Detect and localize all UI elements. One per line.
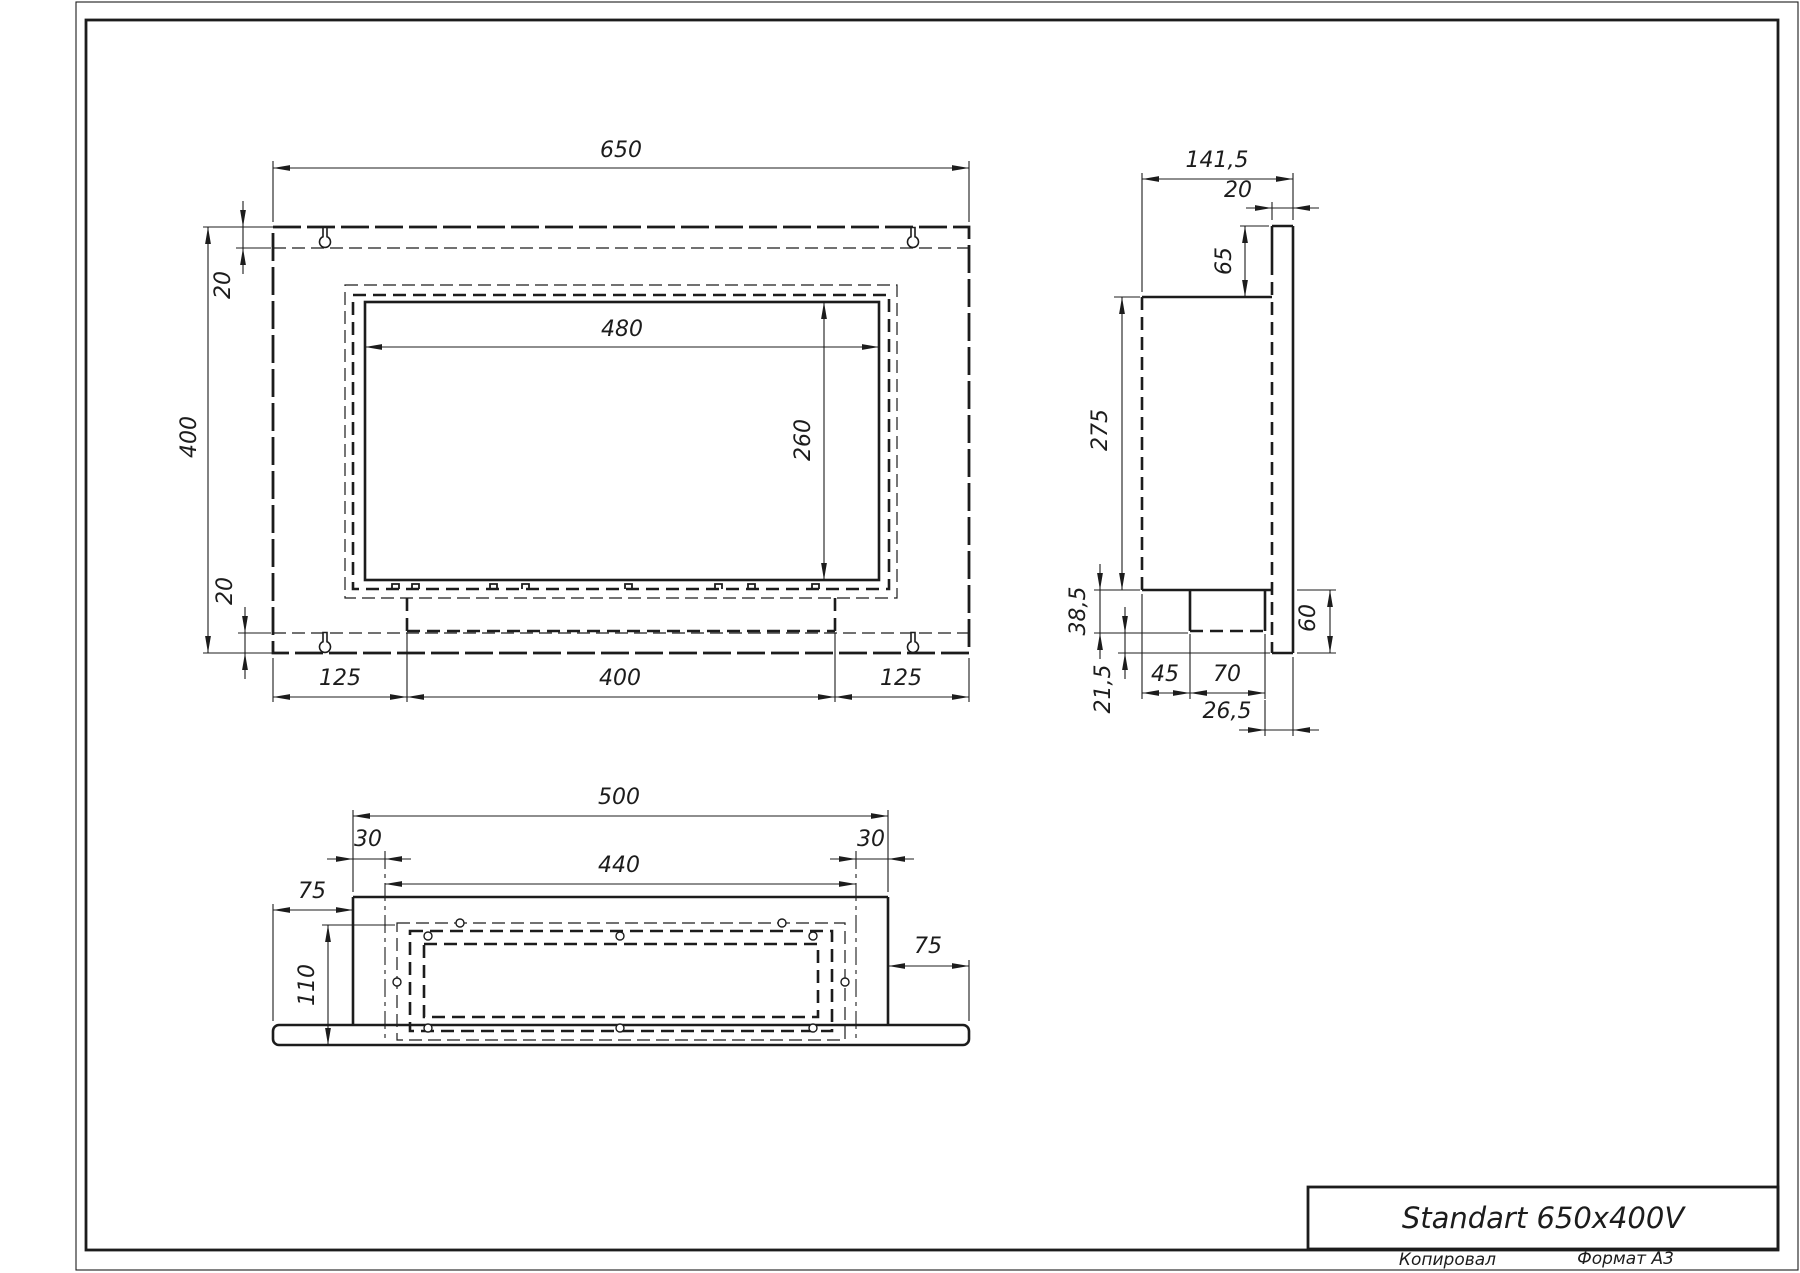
screw-hole [778, 919, 786, 927]
dim-arrow [888, 963, 905, 969]
dim-arrow [365, 344, 382, 350]
dimension-label: 70 [1213, 662, 1241, 687]
dim-arrow [1276, 176, 1293, 182]
dimension-label: 60 [1296, 604, 1321, 632]
dim-arrow [1255, 205, 1272, 211]
dim-arrow [242, 653, 248, 670]
screw-hole [809, 1024, 817, 1032]
dim-arrow [1173, 690, 1190, 696]
screw-hole [393, 978, 401, 986]
dim-arrow [839, 856, 856, 862]
dim-arrow [1327, 590, 1333, 607]
dimension-label: 260 [791, 419, 816, 461]
mounting-keyhole [908, 228, 919, 248]
dim-arrow [273, 165, 290, 171]
dim-arrow [1122, 653, 1128, 670]
dim-arrow [1248, 690, 1265, 696]
dimension-label: 20 [1224, 178, 1252, 203]
dimension-label: 65 [1212, 247, 1237, 275]
sheet-frame [86, 20, 1778, 1250]
dim-arrow [205, 227, 211, 244]
dim-arrow [1097, 633, 1103, 650]
dim-arrow [1242, 280, 1248, 297]
bottom-view-burner-inner-hidden [424, 944, 818, 1017]
title-block-text: Standart 650x400V [1308, 1192, 1778, 1244]
dimension-label: 20 [211, 271, 236, 299]
paper-edge [76, 2, 1798, 1270]
screw-hole [841, 978, 849, 986]
dim-arrow [1190, 690, 1207, 696]
dim-arrow [385, 856, 402, 862]
dim-arrow [1293, 727, 1310, 733]
dim-arrow [407, 694, 424, 700]
dim-arrow [240, 248, 246, 265]
screw-hole [424, 1024, 432, 1032]
dim-arrow [353, 813, 370, 819]
dim-arrow [242, 616, 248, 633]
dim-arrow [1142, 690, 1159, 696]
footer-copied-label: Копировал [1360, 1249, 1535, 1271]
screw-hole [809, 932, 817, 940]
dim-arrow [839, 881, 856, 887]
dim-arrow [888, 856, 905, 862]
dim-arrow [871, 813, 888, 819]
dim-arrow [818, 694, 835, 700]
dimension-label: 440 [598, 853, 640, 878]
dimension-label: 125 [880, 666, 922, 691]
dimension-label: 75 [914, 934, 942, 959]
dim-arrow [390, 694, 407, 700]
dim-arrow [1248, 727, 1265, 733]
dimension-label: 275 [1088, 409, 1113, 451]
dim-arrow [1327, 636, 1333, 653]
dim-arrow [952, 963, 969, 969]
dim-arrow [273, 907, 290, 913]
dim-arrow [952, 165, 969, 171]
dim-arrow [952, 694, 969, 700]
dimension-label: 500 [598, 785, 640, 810]
dimension-label: 480 [601, 317, 643, 342]
screw-hole [424, 932, 432, 940]
dim-arrow [1293, 205, 1310, 211]
dimension-label: 75 [298, 879, 326, 904]
dimension-label: 141,5 [1186, 148, 1249, 173]
dim-arrow [273, 694, 290, 700]
dimension-label: 20 [213, 577, 238, 605]
dim-arrow [821, 563, 827, 580]
dim-arrow [1119, 573, 1125, 590]
screw-hole [456, 919, 464, 927]
screw-hole [616, 932, 624, 940]
dim-arrow [1097, 573, 1103, 590]
drawing-sheet: 6504002048026020125400125141,5206527538,… [0, 0, 1800, 1273]
dim-arrow [862, 344, 879, 350]
footer-format-label: Формат А3 [1538, 1248, 1713, 1270]
dimension-label: 21,5 [1091, 665, 1116, 714]
dimension-label: 650 [600, 138, 642, 163]
dim-arrow [835, 694, 852, 700]
dim-arrow [1142, 176, 1159, 182]
dim-arrow [821, 302, 827, 319]
technical-drawing-canvas: 6504002048026020125400125141,5206527538,… [0, 0, 1800, 1273]
dimension-label: 400 [177, 416, 202, 458]
dim-arrow [240, 210, 246, 227]
dim-arrow [205, 636, 211, 653]
dimension-label: 26,5 [1203, 699, 1252, 724]
dim-arrow [325, 1028, 331, 1045]
dimension-label: 30 [857, 827, 885, 852]
dim-arrow [1122, 616, 1128, 633]
screw-hole [616, 1024, 624, 1032]
dim-arrow [1119, 297, 1125, 314]
dim-arrow [385, 881, 402, 887]
dim-arrow [336, 856, 353, 862]
dimension-label: 30 [354, 827, 382, 852]
mounting-keyhole [908, 633, 919, 653]
dim-arrow [1242, 226, 1248, 243]
dimension-label: 45 [1151, 662, 1179, 687]
mounting-keyhole [320, 633, 331, 653]
dim-arrow [325, 925, 331, 942]
mounting-keyhole [320, 228, 331, 248]
dimension-label: 38,5 [1066, 587, 1091, 636]
dim-arrow [336, 907, 353, 913]
dimension-label: 110 [295, 964, 320, 1006]
dimension-label: 125 [319, 666, 361, 691]
dimension-label: 400 [599, 666, 641, 691]
